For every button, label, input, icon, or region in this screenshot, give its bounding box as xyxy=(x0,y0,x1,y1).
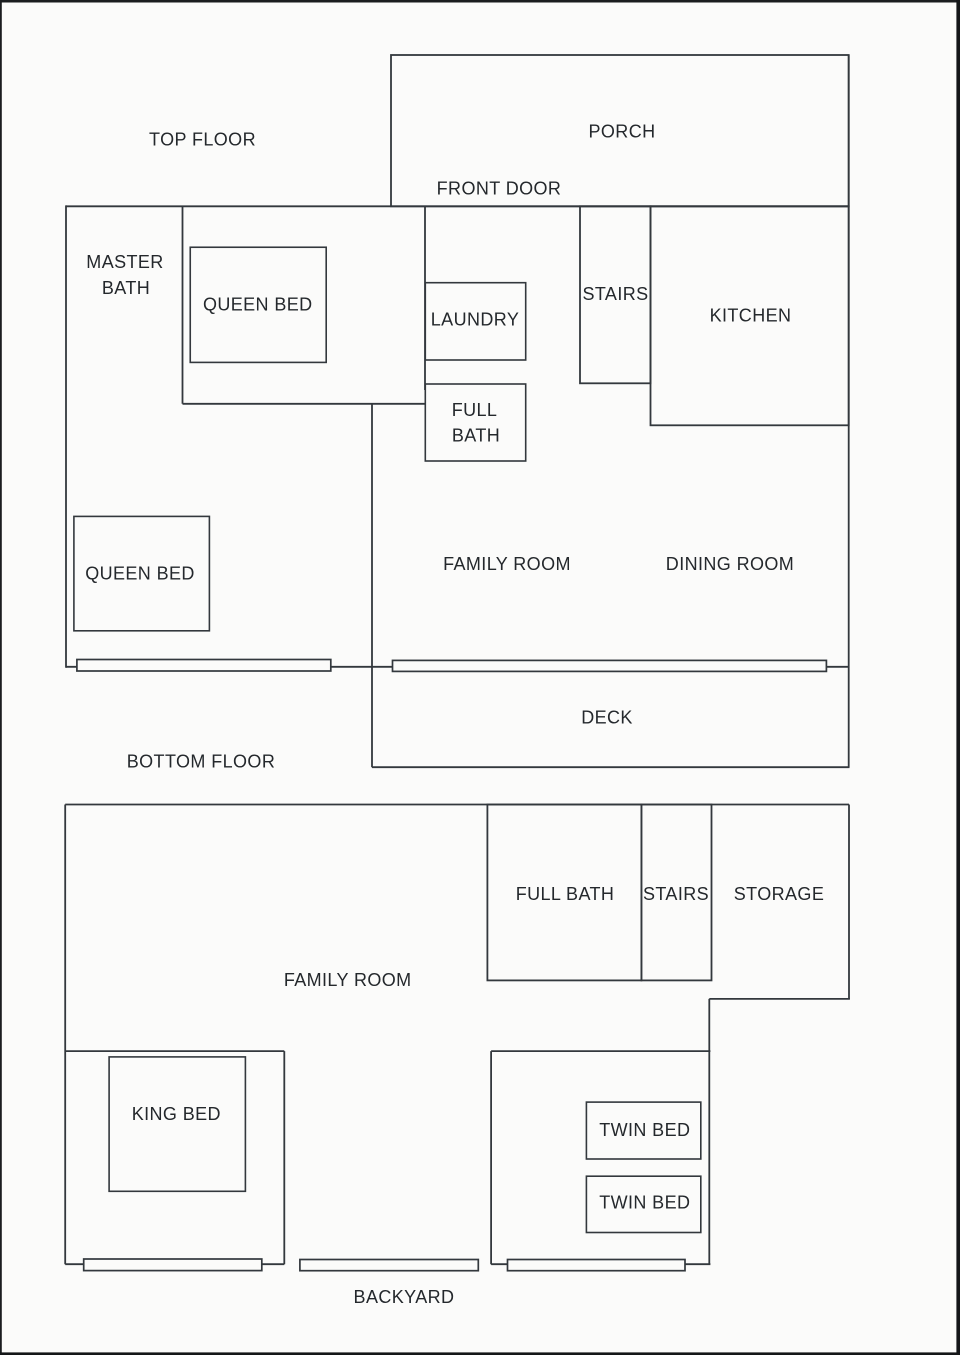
svg-text:FULL: FULL xyxy=(452,400,498,420)
svg-text:BATH: BATH xyxy=(452,425,500,445)
svg-text:FAMILY ROOM: FAMILY ROOM xyxy=(284,970,412,990)
svg-text:MASTER: MASTER xyxy=(86,252,163,272)
svg-text:KING BED: KING BED xyxy=(132,1104,221,1124)
svg-text:BATH: BATH xyxy=(102,278,150,298)
svg-text:STAIRS: STAIRS xyxy=(643,884,709,904)
svg-text:TWIN BED: TWIN BED xyxy=(599,1120,690,1140)
svg-text:DECK: DECK xyxy=(581,707,633,727)
svg-text:QUEEN BED: QUEEN BED xyxy=(85,564,195,584)
svg-text:TOP FLOOR: TOP FLOOR xyxy=(149,130,256,150)
svg-text:FAMILY ROOM: FAMILY ROOM xyxy=(443,554,571,574)
svg-text:TWIN BED: TWIN BED xyxy=(599,1192,690,1212)
svg-text:BACKYARD: BACKYARD xyxy=(354,1287,455,1307)
svg-text:DINING ROOM: DINING ROOM xyxy=(666,554,794,574)
svg-text:BOTTOM FLOOR: BOTTOM FLOOR xyxy=(127,751,275,771)
svg-text:STORAGE: STORAGE xyxy=(734,884,825,904)
svg-text:FRONT DOOR: FRONT DOOR xyxy=(437,179,562,199)
svg-text:QUEEN BED: QUEEN BED xyxy=(203,294,313,314)
svg-text:PORCH: PORCH xyxy=(588,122,655,142)
svg-text:FULL BATH: FULL BATH xyxy=(516,884,615,904)
svg-text:STAIRS: STAIRS xyxy=(582,284,648,304)
svg-text:KITCHEN: KITCHEN xyxy=(710,306,792,326)
svg-text:LAUNDRY: LAUNDRY xyxy=(431,310,520,330)
